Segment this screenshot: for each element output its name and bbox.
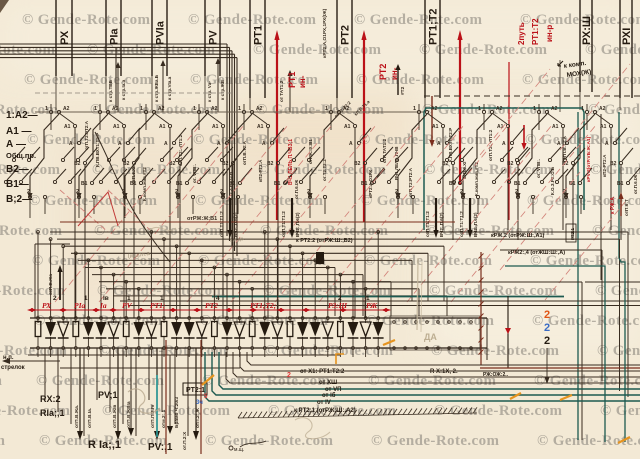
svg-text:отП.В.Жа.: отП.В.Жа.	[74, 405, 80, 428]
svg-text:к стр. Vа-: к стр. Vа-	[207, 81, 212, 102]
svg-text:РV;1: РV;1	[98, 390, 118, 400]
svg-text:РХ: РХ	[59, 30, 71, 45]
svg-text:В1: В1	[361, 181, 368, 187]
svg-text:РТ1;Т2;: РТ1;Т2;	[250, 301, 276, 310]
svg-text:отП.В.Жа: отП.В.Жа	[48, 274, 53, 295]
svg-text:РХ:Ш: РХ:Ш	[581, 16, 593, 45]
svg-text:2: 2	[544, 335, 550, 347]
svg-text:© Gende-Rote.com: © Gende-Rote.com	[431, 343, 560, 359]
svg-text:R Х:1Х, 2.: R Х:1Х, 2.	[430, 369, 458, 375]
svg-text:© Gende-Rote.com: © Gende-Rote.com	[0, 223, 63, 239]
svg-text:А2: А2	[343, 106, 350, 112]
svg-text:2: 2	[338, 295, 342, 302]
svg-text:отП.Т1:Т1:2: отП.Т1:Т1:2	[459, 211, 464, 237]
svg-text:к стр.ТВБ: к стр.ТВБ	[108, 79, 113, 102]
svg-text:А: А	[164, 141, 168, 147]
svg-text:В1: В1	[617, 181, 624, 187]
svg-text:А2: А2	[112, 106, 119, 112]
svg-text:А: А	[262, 141, 266, 147]
svg-text:А: А	[217, 141, 221, 147]
svg-text:2: 2	[544, 309, 550, 321]
svg-text:А1: А1	[552, 124, 559, 130]
svg-text:1: 1	[478, 106, 481, 112]
svg-text:от IV: от IV	[317, 400, 331, 406]
svg-text:© Gende-Rote.com: © Gende-Rote.com	[22, 12, 151, 28]
svg-text:А1: А1	[212, 124, 219, 130]
svg-text:ин-р: ин-р	[545, 25, 554, 42]
svg-text:© Gende-Rote.com: © Gende-Rote.com	[368, 373, 497, 389]
svg-text:от.П.6.IЖ: от.П.6.IЖ	[633, 174, 638, 194]
svg-text:РЖ: РЖ	[366, 301, 378, 310]
svg-text:РТ2: РТ2	[378, 64, 388, 80]
svg-text:#Т2: #Т2	[400, 86, 406, 95]
svg-text:В1: В1	[81, 181, 88, 187]
svg-text:РVIа: РVIа	[155, 20, 167, 45]
svg-text:3ч: 3ч	[196, 400, 203, 406]
svg-text:кП2-РТ2:А: кП2-РТ2:А	[602, 154, 607, 177]
svg-text:© Gende-Rote.com: © Gende-Rote.com	[36, 373, 165, 389]
svg-text:А: А	[502, 141, 506, 147]
svg-text:отП.В.Iа.: отП.В.Iа.	[87, 408, 93, 428]
svg-text:от.Т2:Т2:2: от.Т2:Т2:2	[322, 159, 327, 181]
svg-text:© Gende-Rote.com: © Gende-Rote.com	[253, 42, 382, 58]
svg-text:кРЖ.2 (отРЖ:Ш:,А1): кРЖ.2 (отРЖ:Ш:,А1)	[491, 233, 544, 239]
svg-text:РV: РV	[122, 301, 133, 310]
svg-text:© Gende-Rote.com: © Gende-Rote.com	[600, 403, 640, 419]
svg-text:кРV:2(отР.VБ:Ж:А1): кРV:2(отР.VБ:Ж:А1)	[586, 136, 592, 182]
svg-text:от Iб: от Iб	[322, 392, 336, 399]
svg-text:© Gende-Rote.com: © Gende-Rote.com	[354, 12, 483, 28]
svg-text:1: 1	[160, 295, 164, 302]
svg-text:отП.В.ЖIв: отП.В.ЖIв	[112, 405, 118, 428]
svg-text:К.комп.жив.#Т2: К.комп.жив.#Т2	[474, 162, 479, 196]
svg-text:отРЖ:Ж:В1: отРЖ:Ж:В1	[187, 216, 217, 222]
svg-text:А1: А1	[159, 124, 166, 130]
svg-text:В1: В1	[514, 181, 521, 187]
svg-text:1: 1	[94, 106, 97, 112]
svg-text:А: А	[349, 141, 353, 147]
svg-text:А: А	[69, 141, 73, 147]
svg-text:А1: А1	[113, 124, 120, 130]
svg-text:к стр.VIа.а: к стр.VIа.а	[167, 76, 172, 100]
svg-text:от.П.6.IЖ: от.П.6.IЖ	[294, 179, 299, 199]
svg-text:© Gende-Rote.com: © Gende-Rote.com	[0, 373, 3, 389]
svg-text:А1: А1	[432, 124, 439, 130]
svg-text:В1: В1	[274, 181, 281, 187]
svg-text:кП2-РТ2:А: кП2-РТ2:А	[258, 159, 263, 182]
svg-text:А2: А2	[256, 106, 263, 112]
svg-text:А: А	[605, 141, 609, 147]
svg-text:1: 1	[238, 106, 241, 112]
svg-text:отП.В.Т2:А: отП.В.Т2:А	[242, 140, 247, 165]
svg-text:В1—: В1—	[6, 179, 29, 190]
svg-text:А: А	[437, 141, 441, 147]
svg-text:2: 2	[53, 295, 57, 302]
svg-text:RIа;,1: RIа;,1	[40, 408, 65, 418]
svg-text:РТ2:1: РТ2:1	[186, 387, 205, 394]
svg-text:РТ1:Т2: РТ1:Т2	[531, 18, 540, 45]
svg-text:© Gende-Rote.com: © Gende-Rote.com	[195, 193, 324, 209]
svg-text:1: 1	[84, 295, 88, 302]
svg-text:от Х1: РТ1:Т2:2: от Х1: РТ1:Т2:2	[300, 369, 345, 375]
svg-text:отП.Т1:Т1:2: отП.Т1:Т1:2	[281, 211, 286, 237]
svg-text:А1: А1	[64, 124, 71, 130]
svg-text:Общ.пр.: Общ.пр.	[6, 151, 36, 160]
svg-text:к стр.Iа.а: к стр.Iа.а	[121, 79, 126, 100]
svg-text:стрелок: стрелок	[1, 365, 25, 371]
svg-text:© Gende-Rote.com: © Gende-Rote.com	[592, 223, 640, 239]
svg-text:А —: А —	[6, 139, 26, 150]
svg-text:Iв: Iв	[103, 295, 109, 302]
svg-text:РТ1: РТ1	[287, 72, 297, 88]
svg-text:© Gende-Rote.com: © Gende-Rote.com	[588, 102, 640, 118]
svg-text:РХ: РХ	[42, 301, 52, 310]
svg-text:отП.2:,Ж: отП.2:,Ж	[195, 407, 201, 428]
svg-text:4: 4	[216, 295, 220, 302]
svg-text:1: 1	[140, 106, 143, 112]
svg-text:от ХШ: от ХШ	[319, 380, 337, 386]
svg-text:© Gende-Rote.com: © Gende-Rote.com	[371, 433, 500, 449]
svg-text:кРТ2:А,О1РХ,1РХ(IЖ): кРТ2:А,О1РХ,1РХ(IЖ)	[322, 8, 328, 58]
svg-text:отП.Т2:РТ2:А: отП.Т2:РТ2:А	[408, 167, 413, 197]
svg-text:© Gende-Rote.com: © Gende-Rote.com	[24, 72, 153, 88]
svg-text:© Gende-Rote.com: © Gende-Rote.com	[260, 223, 389, 239]
svg-text:А2: А2	[551, 106, 558, 112]
svg-text:1: 1	[127, 295, 131, 302]
svg-text:отП.Т1:Т1:2: отП.Т1:Т1:2	[425, 211, 430, 237]
svg-text:© Gende-Rote.com: © Gende-Rote.com	[525, 132, 640, 148]
svg-text:А2: А2	[431, 106, 438, 112]
svg-text:R Iа;,1: R Iа;,1	[88, 439, 121, 451]
svg-text:РТ2: РТ2	[205, 301, 218, 310]
svg-text:Iа: Iа	[99, 301, 107, 310]
svg-text:1: 1	[325, 106, 328, 112]
svg-text:РТ1: РТ1	[253, 25, 265, 45]
svg-text:отП.ТАТ1:2: отП.ТАТ1:2	[382, 138, 387, 163]
svg-text:РЗ:Ш: РЗ:Ш	[328, 301, 348, 310]
svg-text:РТ1;: РТ1;	[150, 301, 165, 310]
svg-text:ВЧ2:,П.6(2): ВЧ2:,П.6(2)	[295, 212, 300, 237]
svg-text:1: 1	[45, 106, 48, 112]
svg-text:А2: А2	[211, 106, 218, 112]
svg-text:РТ1;Т2: РТ1;Т2	[428, 8, 440, 45]
svg-text:© Gende-Rote.com: © Gende-Rote.com	[434, 403, 563, 419]
svg-text:© Gende-Rote.com: © Gende-Rote.com	[534, 373, 640, 389]
svg-text:1: 1	[366, 295, 370, 302]
svg-text:Брамо Ч:20/3: Брамо Ч:20/3	[174, 397, 180, 428]
svg-text:РV:,1: РV:,1	[148, 442, 173, 453]
svg-text:В2—: В2—	[6, 164, 29, 175]
svg-text:РIа: РIа	[109, 28, 121, 45]
svg-text:А2: А2	[496, 106, 503, 112]
svg-text:РТ2: РТ2	[340, 25, 352, 45]
svg-text:1:А2—: 1:А2—	[6, 110, 38, 121]
svg-text:А2: А2	[63, 106, 70, 112]
svg-text:отП.Т2:.-ЛТ1:2: отП.Т2:.-ЛТ1:2	[488, 129, 493, 161]
svg-text:© Gende-Rote.com: © Gende-Rote.com	[205, 433, 334, 449]
svg-text:В1: В1	[229, 181, 236, 187]
svg-text:RX:2: RX:2	[40, 394, 61, 404]
svg-text:2: 2	[544, 322, 550, 334]
svg-text:м.щ.: м.щ.	[234, 447, 244, 453]
svg-text:© Gende-Rote.com: © Gende-Rote.com	[597, 343, 640, 359]
svg-text:ДА: ДА	[424, 332, 437, 342]
svg-text:кРЖ2:,4 (отЖШ:Ш:,А): кРЖ2:,4 (отЖШ:Ш:,А)	[508, 250, 565, 256]
svg-text:А2: А2	[599, 106, 606, 112]
svg-text:ин-: ин-	[298, 75, 307, 88]
svg-text:В1: В1	[176, 181, 183, 187]
svg-text:отП.П:2.IV: отП.П:2.IV	[150, 404, 156, 428]
svg-text:© Gende-Rote.com: © Gende-Rote.com	[198, 253, 327, 269]
svg-text:к стр.ЖВ: к стр.ЖВ	[220, 79, 225, 100]
svg-text:РТ2:1: РТ2:1	[570, 228, 575, 240]
svg-text:РV: РV	[208, 30, 220, 45]
svg-text:© Gende-Rote.com: © Gende-Rote.com	[265, 343, 394, 359]
svg-text:© Gende-Rote.com: © Gende-Rote.com	[356, 72, 485, 88]
svg-text:ВЧ2:,П.6(2): ВЧ2:,П.6(2)	[233, 212, 238, 237]
svg-text:отП:6:Т: отП:6:Т	[624, 199, 629, 216]
svg-text:1: 1	[193, 106, 196, 112]
svg-text:А1: А1	[344, 124, 351, 130]
svg-text:1: 1	[581, 106, 584, 112]
svg-text:к РЖ:А: к РЖ:А	[610, 197, 616, 214]
svg-text:© Gende-Rote.com: © Gende-Rote.com	[27, 132, 156, 148]
svg-text:А1: А1	[257, 124, 264, 130]
svg-text:© Gende-Rote.com: © Gende-Rote.com	[366, 313, 495, 329]
svg-text:А1 —: А1 —	[6, 126, 32, 137]
svg-text:1: 1	[413, 106, 416, 112]
svg-text:РЖ:ОЖ:2..: РЖ:ОЖ:2..	[483, 372, 509, 378]
svg-text:РХI: РХI	[621, 28, 633, 45]
svg-text:А1: А1	[600, 124, 607, 130]
svg-text:2: 2	[287, 372, 291, 379]
svg-text:2путь: 2путь	[517, 22, 526, 45]
svg-text:В;2—: В;2—	[6, 194, 32, 205]
svg-text:© Gende-Rote.com: © Gende-Rote.com	[0, 433, 6, 449]
svg-text:© Gende-Rote.com: © Gende-Rote.com	[422, 102, 551, 118]
svg-text:ВЧ2:,П.6(2): ВЧ2:,П.6(2)	[439, 212, 444, 237]
svg-text:РIа: РIа	[74, 301, 86, 310]
svg-text:отП.Т1:Т1:2: отП.Т1:Т1:2	[219, 211, 224, 237]
svg-text:от.П.2:Х: от.П.2:Х	[182, 431, 188, 450]
svg-text:ВЧ2:,П.6(2): ВЧ2:,П.6(2)	[473, 212, 478, 237]
svg-text:© Gende-Rote.com: © Gende-Rote.com	[193, 132, 322, 148]
svg-text:В1: В1	[130, 181, 137, 187]
svg-text:к РТ2:2 (отРЖ:Ш:,В2): к РТ2:2 (отРЖ:Ш:,В2)	[296, 238, 353, 244]
svg-text:А: А	[118, 141, 122, 147]
svg-text:А: А	[557, 141, 561, 147]
svg-text:А2: А2	[158, 106, 165, 112]
svg-text:от ТАТ1:2: от ТАТ1:2	[279, 80, 284, 102]
svg-text:1: 1	[533, 106, 536, 112]
svg-text:к стр.ЖВа.Б: к стр.ЖВа.Б	[154, 74, 159, 102]
